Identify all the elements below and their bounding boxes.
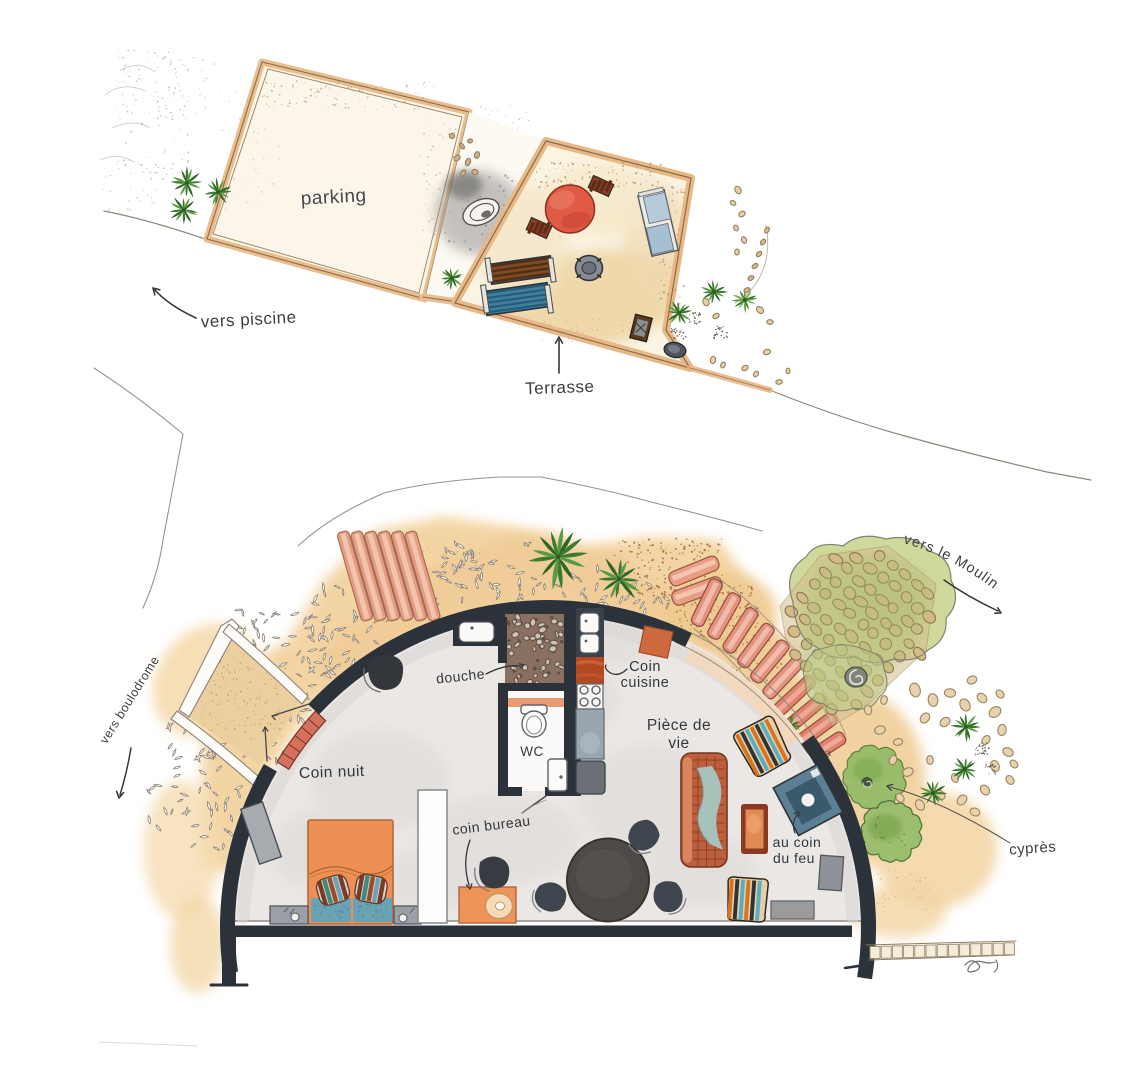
svg-text:Coin: Coin [629,659,661,675]
svg-text:Terrasse: Terrasse [525,377,595,398]
svg-text:Pièce de: Pièce de [647,717,711,734]
svg-text:au coin: au coin [773,834,822,850]
svg-text:WC: WC [520,744,544,759]
svg-text:cuisine: cuisine [621,675,670,691]
svg-text:Coin nuit: Coin nuit [299,763,365,782]
svg-text:vie: vie [668,735,689,752]
svg-text:du feu: du feu [773,850,815,866]
svg-text:parking: parking [300,185,367,209]
svg-text:cyprès: cyprès [1009,838,1057,858]
